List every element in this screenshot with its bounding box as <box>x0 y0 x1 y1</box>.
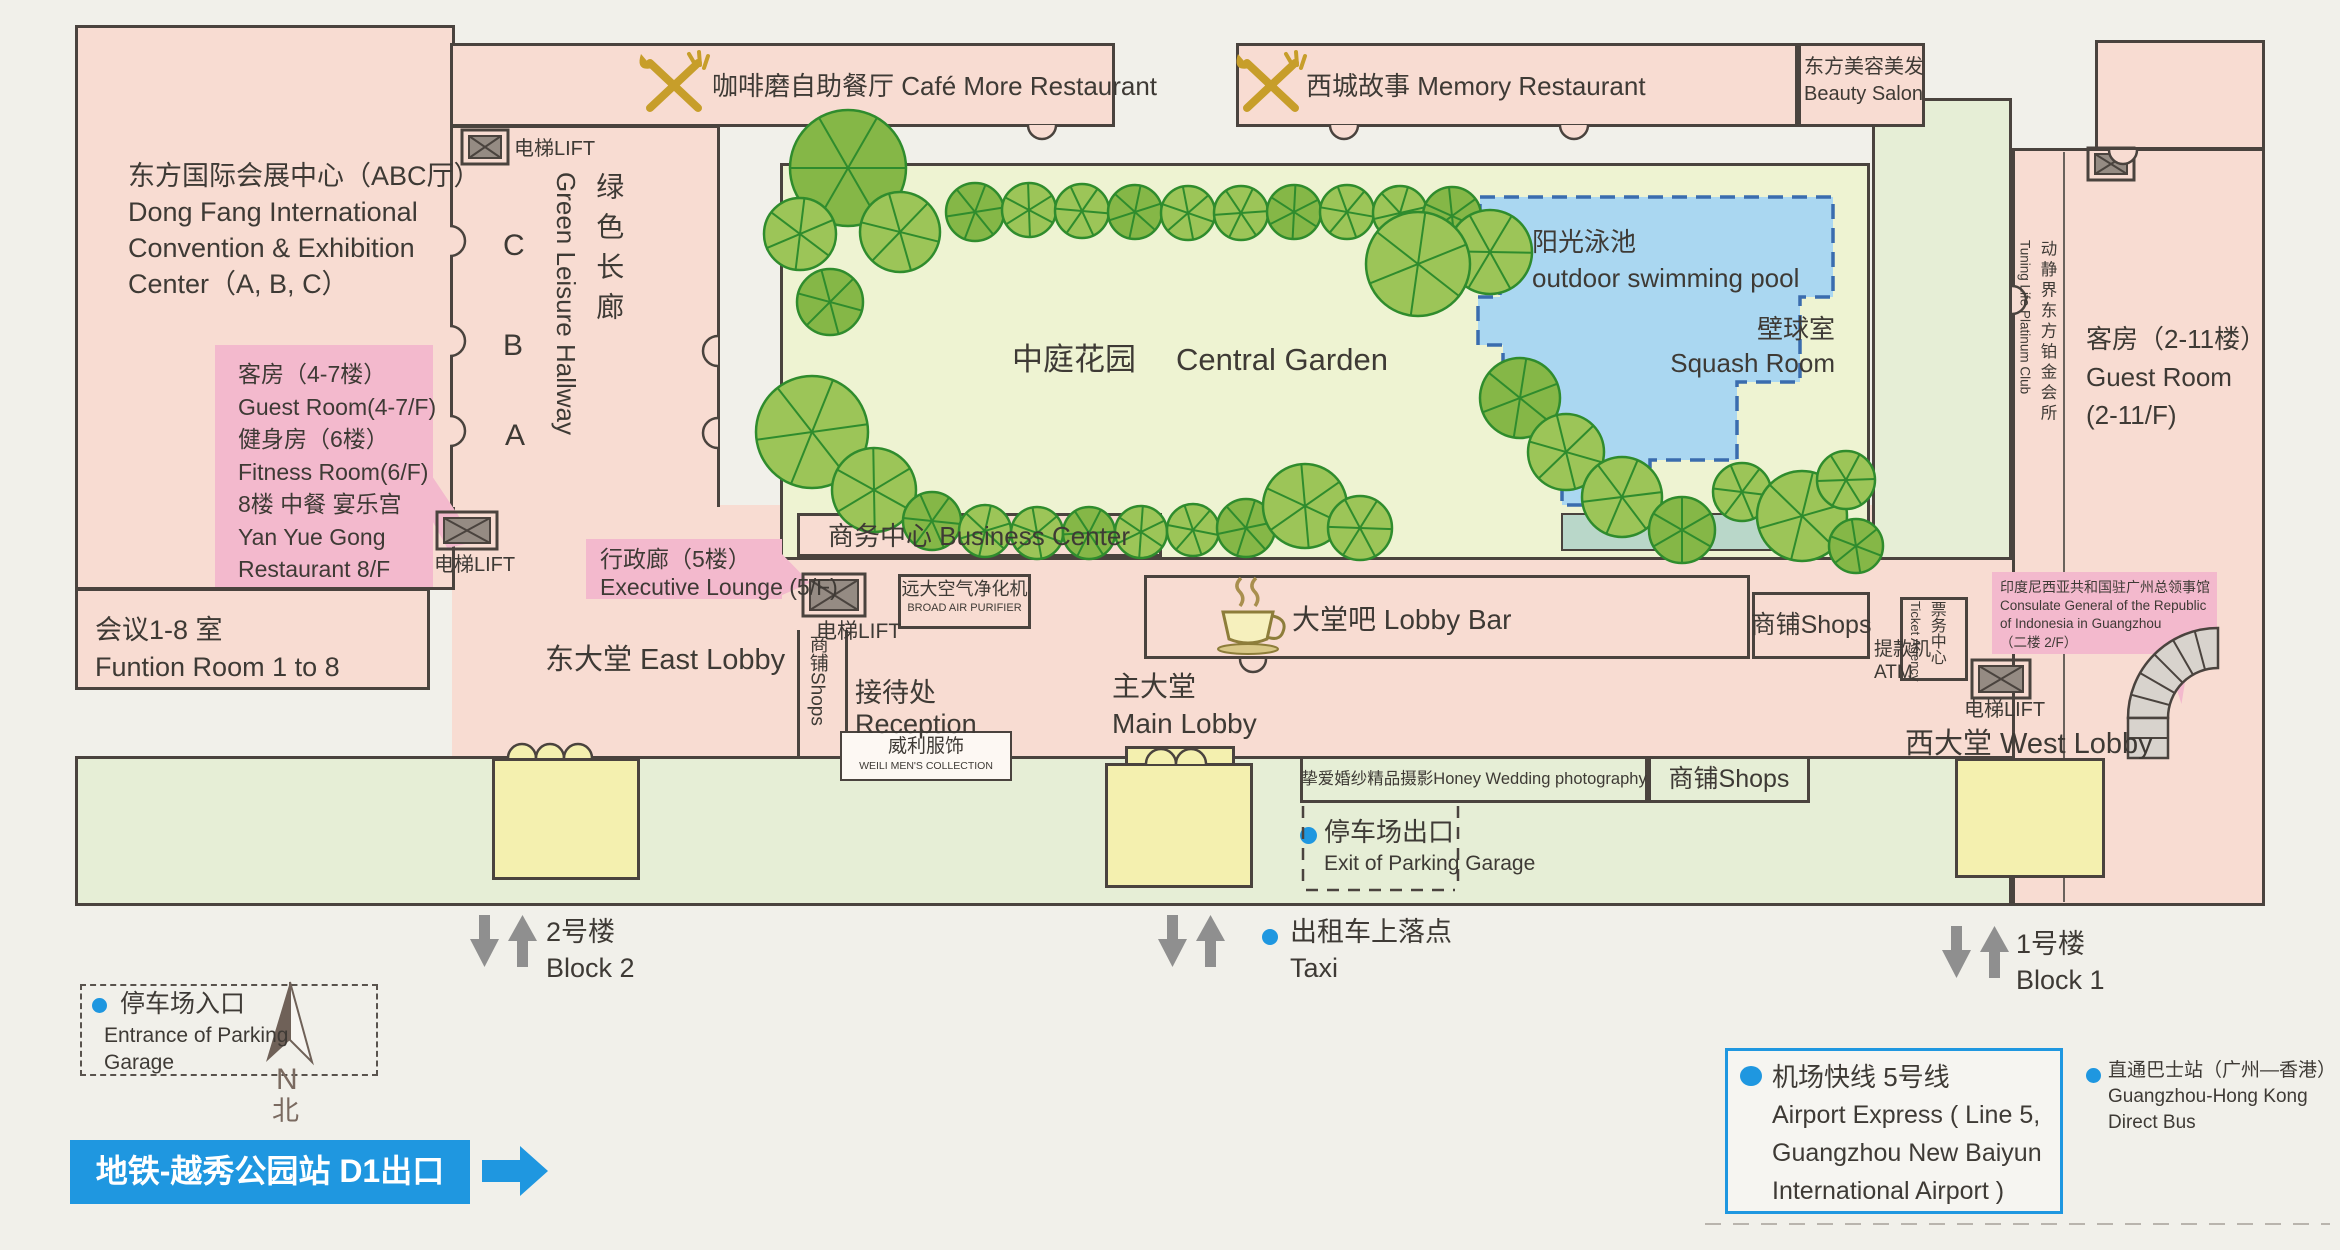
squash-label-zh: 壁球室 <box>1650 312 1835 346</box>
reception-label: 接待处 Reception <box>855 678 977 740</box>
hkbus-line: Direct Bus <box>2108 1110 2336 1136</box>
updown-arrows-icon <box>1196 915 1225 941</box>
airport-express-label: 机场快线 5号线 Airport Express ( Line 5, Guang… <box>1772 1058 2042 1210</box>
callout-line: Fitness Room(6/F) <box>238 456 436 489</box>
main-lobby-zh: 主大堂 <box>1112 668 1257 705</box>
callout-line: Yan Yue Gong <box>238 521 436 554</box>
weili-shop-label: 威利服饰 WEILI MEN'S COLLECTION <box>840 735 1012 773</box>
ticket-agency-label: Ticket Agency 票务中心 <box>1906 601 1946 679</box>
hallway-label-en: Green Leisure Hallway <box>548 172 582 502</box>
updown-arrows-icon <box>1167 915 1178 941</box>
callout-line: 健身房（6楼） <box>238 423 436 456</box>
garden-pond <box>1561 513 1809 551</box>
airport-line: Guangzhou New Baiyun <box>1772 1134 2042 1172</box>
memory-restaurant-label: 西城故事 Memory Restaurant <box>1306 70 1646 104</box>
callout-line: 8楼 中餐 宴乐宫 <box>238 488 436 521</box>
callout-line: Guest Room(4-7/F) <box>238 391 436 424</box>
block1-en: Block 1 <box>2016 962 2105 998</box>
updown-arrows-icon <box>1980 926 2009 952</box>
lift-label-3: 电梯LIFT <box>816 618 901 645</box>
shops-lobby-label: 商铺Shops <box>1752 592 1870 659</box>
metro-direction-arrow-icon <box>482 1146 548 1196</box>
taxi-label: 出租车上落点 Taxi <box>1290 914 1452 986</box>
updown-arrows-icon <box>517 941 528 967</box>
squash-room-label: 壁球室 Squash Room <box>1650 312 1835 380</box>
guestroom-right-label: 客房（2-11楼） Guest Room (2-11/F) <box>2086 320 2266 434</box>
lobby-bar-label: 大堂吧 Lobby Bar <box>1292 602 1511 638</box>
weili-label-en: WEILI MEN'S COLLECTION <box>859 760 993 774</box>
exit-parking-label-en: Exit of Parking Garage <box>1324 850 1535 877</box>
exit-parking-label-zh: 停车场出口 <box>1324 816 1454 850</box>
hkbus-label: 直通巴士站（广州—香港） Guangzhou-Hong Kong Direct … <box>2108 1058 2336 1136</box>
guestroom-callout-text: 客房（4-7楼） Guest Room(4-7/F) 健身房（6楼） Fitne… <box>238 358 436 586</box>
shops-corridor-label: 商铺Shops <box>804 634 829 758</box>
west-lawn-strip <box>1872 98 2012 560</box>
consulate-label: 印度尼西亚共和国驻广州总领事馆 Consulate General of the… <box>2000 578 2210 652</box>
weili-label-zh: 威利服饰 <box>888 735 964 760</box>
compass-bei-label: 北 <box>272 1094 299 1129</box>
right-building-top <box>2095 40 2265 150</box>
platinum-club-label: Tuning Life Platinum Club 动静界东方铂金会所 <box>2016 240 2057 580</box>
entrance-parking-label-zh: 停车场入口 <box>120 988 245 1021</box>
airport-line: 机场快线 5号线 <box>1772 1058 2042 1096</box>
consulate-line: Consulate General of the Republic <box>2000 597 2210 616</box>
hkbus-line: 直通巴士站（广州—香港） <box>2108 1058 2336 1084</box>
beauty-salon-label: 东方美容美发 Beauty Salon <box>1804 54 1924 108</box>
squash-label-en: Squash Room <box>1650 346 1835 380</box>
cafe-label-en: Café More Restaurant <box>901 71 1157 101</box>
consulate-line: 印度尼西亚共和国驻广州总领事馆 <box>2000 578 2210 597</box>
lift-label-1: 电梯LIFT <box>514 136 595 162</box>
air-purifier-label: 远大空气净化机 BROAD AIR PURIFIER <box>898 578 1031 616</box>
honey-wedding-label: 挚爱婚纱精品摄影Honey Wedding photography <box>1300 756 1648 803</box>
convention-line-zh: 东方国际会展中心（ABC厅） <box>128 158 481 194</box>
updown-arrows-icon <box>470 939 499 967</box>
updown-arrows-icon <box>479 915 490 941</box>
callout-line: Restaurant 8/F <box>238 553 436 586</box>
guest-right-zh: 客房（2-11楼） <box>2086 320 2266 358</box>
consulate-line: （二楼 2/F） <box>2000 634 2210 653</box>
exit-parking-dot-icon <box>1300 827 1317 844</box>
block1-zh: 1号楼 <box>2016 926 2105 962</box>
main-canopy <box>1105 763 1253 888</box>
lift-label-2: 电梯LIFT <box>434 552 515 578</box>
shops-south-label: 商铺Shops <box>1648 756 1810 803</box>
guest-right-en2: (2-11/F) <box>2086 396 2266 434</box>
door-arc-icon <box>1560 125 1588 139</box>
block2-en: Block 2 <box>546 950 635 986</box>
east-lobby-label: 东大堂 East Lobby <box>545 642 785 680</box>
exec-label-en: Executive Lounge (5/F) <box>600 573 838 601</box>
function-line-en: Funtion Room 1 to 8 <box>95 649 340 686</box>
purifier-label-en: BROAD AIR PURIFIER <box>907 601 1021 615</box>
club-label-en: Tuning Life Platinum Club <box>2016 240 2034 580</box>
airport-line: Airport Express ( Line 5, <box>1772 1096 2042 1134</box>
door-label-a: A <box>505 416 525 455</box>
pool-label-en: outdoor swimming pool <box>1532 260 1799 296</box>
hkbus-dot-icon <box>2086 1068 2101 1083</box>
block1-label: 1号楼 Block 1 <box>2016 926 2105 998</box>
west-canopy <box>1955 758 2105 878</box>
metro-banner-label: 地铁-越秀公园站 D1出口 <box>70 1140 470 1204</box>
hallway-label-zh: 绿色长廊 <box>590 172 626 502</box>
block2-canopy <box>492 758 640 880</box>
door-label-c: C <box>503 226 525 265</box>
beauty-label-en: Beauty Salon <box>1804 81 1924 108</box>
entrance-parking-label-en: Entrance of Parking Garage <box>104 1022 288 1076</box>
beauty-label-zh: 东方美容美发 <box>1804 54 1924 81</box>
entrance-en1: Entrance of Parking <box>104 1022 288 1049</box>
garden-label-en: Central Garden <box>1176 340 1388 380</box>
taxi-dot-icon <box>1262 929 1278 945</box>
function-room-label: 会议1-8 室 Funtion Room 1 to 8 <box>95 612 340 686</box>
updown-arrows-icon <box>1951 926 1962 952</box>
convention-line-en3: Center（A, B, C） <box>128 266 481 302</box>
cafe-label-zh: 咖啡磨自助餐厅 <box>712 71 894 101</box>
exec-label-zh: 行政廊（5楼） <box>600 545 838 573</box>
west-lobby-label: 西大堂 West Lobby <box>1905 726 2153 764</box>
taxi-zh: 出租车上落点 <box>1290 914 1452 950</box>
block2-zh: 2号楼 <box>546 914 635 950</box>
lift-label-4: 电梯LIFT <box>1964 697 2045 723</box>
updown-arrows-icon <box>1158 939 1187 967</box>
consulate-line: of Indonesia in Guangzhou <box>2000 615 2210 634</box>
guest-right-en1: Guest Room <box>2086 358 2266 396</box>
updown-arrows-icon <box>508 915 537 941</box>
convention-line-en2: Convention & Exhibition <box>128 230 481 266</box>
club-label-zh: 动静界东方铂金会所 <box>2036 240 2057 580</box>
ticket-label-en: Ticket Agency <box>1906 601 1923 679</box>
reception-label-zh: 接待处 <box>855 678 977 709</box>
business-center-label: 商务中心 Business Center <box>828 520 1130 554</box>
hkbus-line: Guangzhou-Hong Kong <box>2108 1084 2336 1110</box>
shops-corridor-wall-left <box>797 630 800 758</box>
airport-line: International Airport ) <box>1772 1172 2042 1210</box>
pool-label: 阳光泳池 outdoor swimming pool <box>1532 224 1799 296</box>
updown-arrows-icon <box>1205 941 1216 967</box>
block2-label: 2号楼 Block 2 <box>546 914 635 986</box>
function-line-zh: 会议1-8 室 <box>95 612 340 649</box>
entrance-parking-dot-icon <box>92 998 107 1013</box>
ticket-label-zh: 票务中心 <box>1925 601 1946 679</box>
convention-line-en1: Dong Fang International <box>128 194 481 230</box>
purifier-label-zh: 远大空气净化机 <box>902 578 1028 601</box>
pool-label-zh: 阳光泳池 <box>1532 224 1799 260</box>
door-arc-icon <box>1330 125 1358 139</box>
door-label-b: B <box>503 326 523 365</box>
entrance-en2: Garage <box>104 1049 288 1076</box>
taxi-en: Taxi <box>1290 950 1452 986</box>
memory-label-en: Memory Restaurant <box>1417 71 1645 101</box>
airport-dot-icon <box>1740 1066 1762 1086</box>
updown-arrows-icon <box>1942 950 1971 978</box>
door-arc-icon <box>1028 125 1056 139</box>
convention-center-label: 东方国际会展中心（ABC厅） Dong Fang International C… <box>128 158 481 302</box>
garden-label-zh: 中庭花园 <box>1012 340 1136 380</box>
updown-arrows-icon <box>1989 952 2000 978</box>
main-lobby-label: 主大堂 Main Lobby <box>1112 668 1257 742</box>
exec-lounge-label: 行政廊（5楼） Executive Lounge (5/F) <box>600 545 838 601</box>
callout-line: 客房（4-7楼） <box>238 358 436 391</box>
memory-label-zh: 西城故事 <box>1306 71 1410 101</box>
green-hallway-label: Green Leisure Hallway 绿色长廊 <box>548 172 626 502</box>
cafe-restaurant-label: 咖啡磨自助餐厅 Café More Restaurant <box>712 70 1157 104</box>
main-lobby-en: Main Lobby <box>1112 705 1257 742</box>
